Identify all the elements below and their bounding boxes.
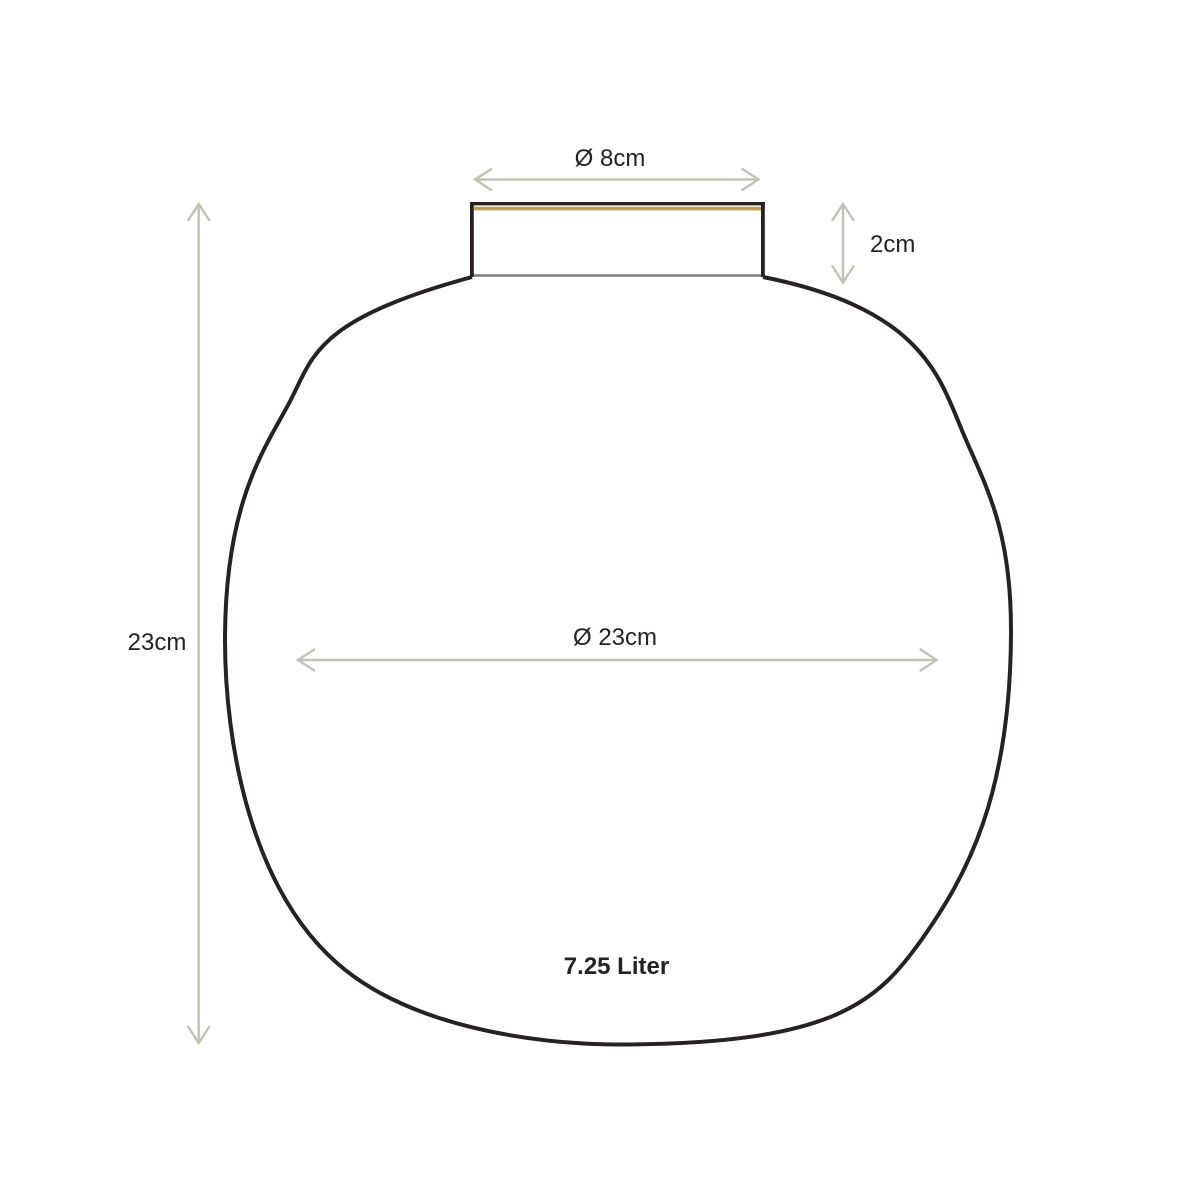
svg-text:Ø 8cm: Ø 8cm [575,145,646,172]
svg-text:Ø 23cm: Ø 23cm [573,624,657,651]
svg-text:7.25 Liter: 7.25 Liter [564,953,669,980]
svg-text:23cm: 23cm [128,629,187,656]
svg-text:2cm: 2cm [870,231,915,258]
